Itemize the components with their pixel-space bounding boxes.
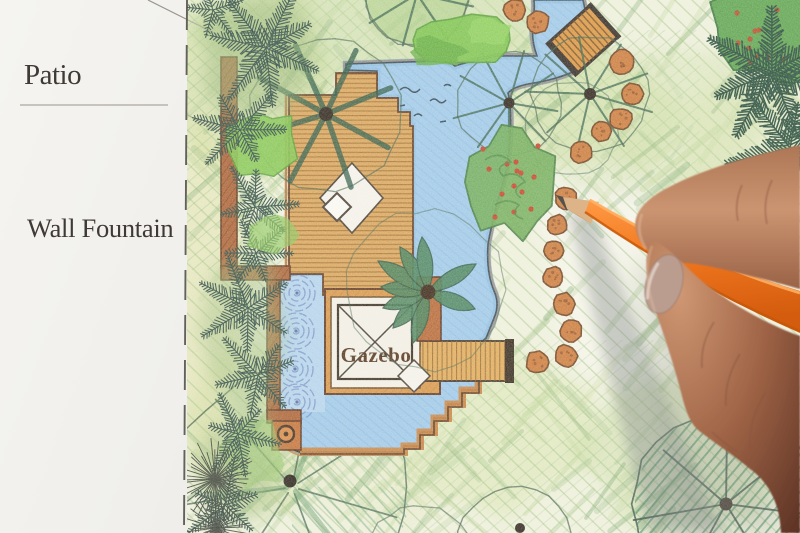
svg-text:Wall Fountain: Wall Fountain bbox=[27, 213, 173, 243]
svg-text:Patio: Patio bbox=[24, 59, 81, 91]
